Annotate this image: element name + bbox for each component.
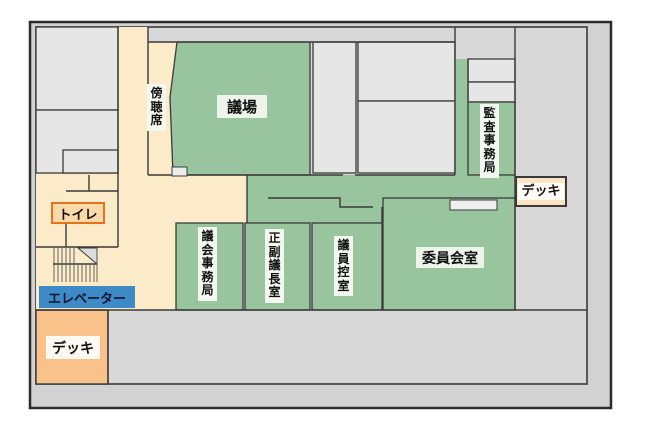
room-gray-center-bottom (358, 101, 455, 173)
area-green-strip (455, 59, 468, 175)
door-opening (172, 167, 187, 176)
label-gikai-jimukyoku: 議会事務局 (198, 227, 217, 301)
label-gijo: 議場 (217, 95, 267, 118)
room-gray-right-small-1 (468, 59, 515, 82)
room-gray-right-small-2 (468, 82, 515, 102)
label-kansa-jimukyoku: 監査事務局 (480, 104, 499, 178)
room-gray-left-top (36, 27, 118, 110)
deck-right: デッキ (515, 176, 567, 207)
label-iinkai-shitsu: 委員会室 (416, 247, 484, 268)
label-toilet: トイレ (51, 202, 105, 224)
label-giin-hikaeshitsu: 議員控室 (334, 236, 353, 296)
room-gray-center-narrow (313, 42, 356, 173)
label-bochoseki: 傍聴席 (147, 84, 166, 131)
door-opening (450, 200, 497, 210)
room-gray-center-top (358, 42, 455, 101)
label-seifuku-gicho-shitsu: 正副議長室 (265, 229, 284, 303)
room-gray-left-small (63, 150, 118, 173)
label-elevator: エレベーター (39, 286, 135, 308)
floorplan-image: 議場 傍聴席 監査事務局 議会事務局 正副議長室 議員控室 委員会室 トイレ エ… (0, 0, 650, 426)
label-deck-right: デッキ (518, 183, 563, 200)
label-deck-left: デッキ (46, 336, 100, 359)
area-corridor (118, 27, 148, 175)
